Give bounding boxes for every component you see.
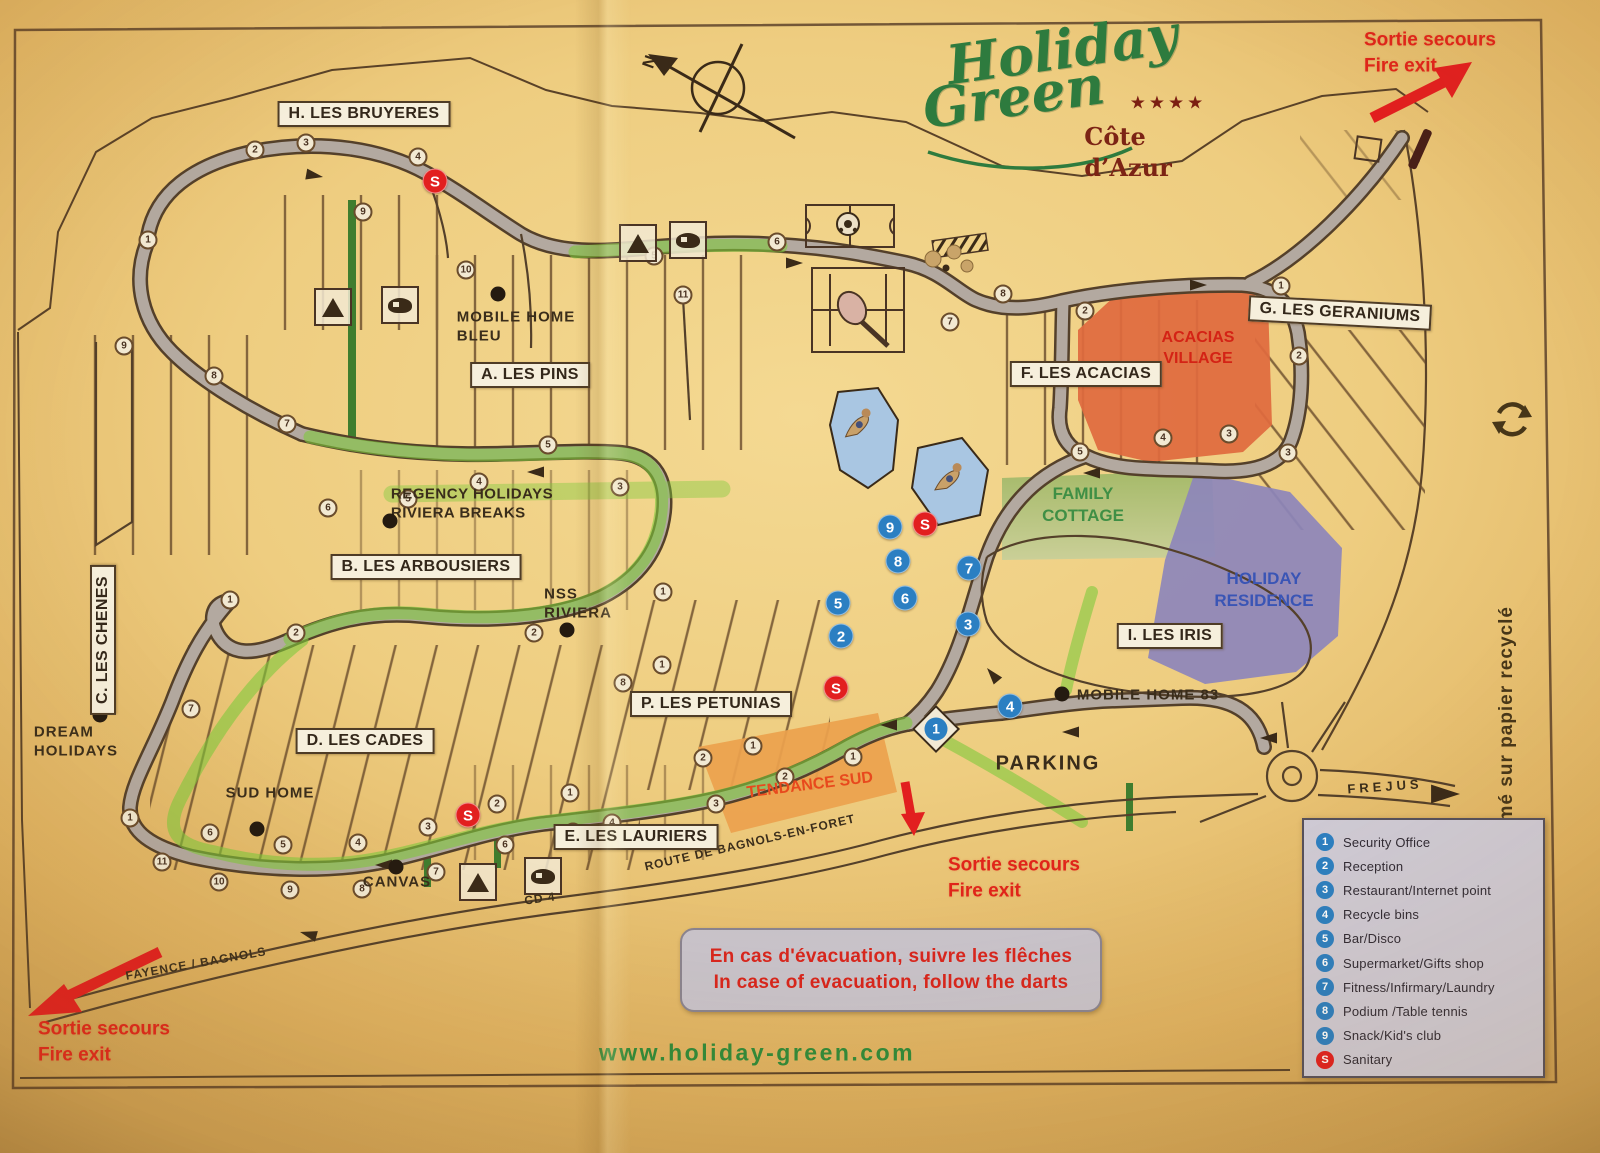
road-number-marker: 3 xyxy=(1220,425,1239,444)
road-number-marker: 3 xyxy=(611,478,630,497)
legend-symbol: 3 xyxy=(1316,881,1334,899)
sanitary-marker: S xyxy=(423,169,448,194)
road-number-marker: 9 xyxy=(281,881,300,900)
road-number-marker: 7 xyxy=(182,700,201,719)
road-number-marker: 8 xyxy=(205,367,224,386)
legend-label: Restaurant/Internet point xyxy=(1343,883,1491,898)
legend-label: Fitness/Infirmary/Laundry xyxy=(1343,980,1495,995)
facility-marker: 9 xyxy=(878,515,903,540)
road-number-marker: 10 xyxy=(210,873,229,892)
road-number-marker: 9 xyxy=(354,203,373,222)
legend-label: Snack/Kid's club xyxy=(1343,1028,1441,1043)
legend-label: Security Office xyxy=(1343,835,1430,850)
legend-item: 7Fitness/Infirmary/Laundry xyxy=(1316,975,1535,999)
caravan-icon xyxy=(381,286,419,324)
location-dot xyxy=(1055,687,1070,702)
road-number-marker: 1 xyxy=(654,583,673,602)
facility-marker: 8 xyxy=(886,549,911,574)
road-number-marker: 3 xyxy=(297,134,316,153)
zone-label-f-les-acacias: F. LES ACACIAS xyxy=(1010,361,1162,387)
map-label: PARKING xyxy=(996,752,1101,777)
legend-label: Supermarket/Gifts shop xyxy=(1343,956,1484,971)
facility-marker: 7 xyxy=(957,556,982,581)
map-label: DREAM HOLIDAYS xyxy=(34,723,118,761)
legend-label: Podium /Table tennis xyxy=(1343,1004,1468,1019)
zone-label-d-les-cades: D. LES CADES xyxy=(296,728,435,754)
road-number-marker: 2 xyxy=(525,624,544,643)
road-number-marker: 6 xyxy=(319,499,338,518)
fire-exit-label: Sortie secoursFire exit xyxy=(948,852,1080,903)
fire-exit-line-en: Fire exit xyxy=(1364,53,1496,79)
road-number-marker: 4 xyxy=(409,148,428,167)
road-number-marker: 4 xyxy=(349,834,368,853)
road-number-marker: 8 xyxy=(614,674,633,693)
fire-exit-line-en: Fire exit xyxy=(38,1042,170,1068)
tent-icon xyxy=(459,863,497,901)
legend-item: 6Supermarket/Gifts shop xyxy=(1316,951,1535,975)
map-label: REGENCY HOLIDAYS RIVIERA BREAKS xyxy=(391,485,553,523)
legend-symbol: 1 xyxy=(1316,833,1334,851)
legend-label: Sanitary xyxy=(1343,1052,1392,1067)
tent-icon xyxy=(314,288,352,326)
road-number-marker: 1 xyxy=(139,231,158,250)
map-label: NSS RIVIERA xyxy=(544,585,612,623)
road-number-marker: 1 xyxy=(844,748,863,767)
location-dot xyxy=(560,623,575,638)
road-number-marker: 6 xyxy=(496,836,515,855)
fire-exit-line-fr: Sortie secours xyxy=(948,852,1080,878)
road-number-marker: 1 xyxy=(561,784,580,803)
zone-label-a-les-pins: A. LES PINS xyxy=(470,362,590,388)
map-label: SUD HOME xyxy=(226,785,315,804)
fire-exit-label: Sortie secoursFire exit xyxy=(1364,27,1496,78)
road-number-marker: 9 xyxy=(115,337,134,356)
sanitary-marker: S xyxy=(824,676,849,701)
legend-item: 1Security Office xyxy=(1316,830,1535,854)
sanitary-marker: S xyxy=(913,512,938,537)
road-number-marker: 2 xyxy=(287,624,306,643)
location-dot xyxy=(389,860,404,875)
road-number-marker: 3 xyxy=(419,818,438,837)
road-number-marker: 11 xyxy=(153,853,172,872)
zone-label-c-les-chenes: C. LES CHENES xyxy=(90,565,116,715)
zone-label-p-les-petunias: P. LES PETUNIAS xyxy=(630,691,792,717)
legend-item: 3Restaurant/Internet point xyxy=(1316,878,1535,902)
zone-label-h-les-bruyeres: H. LES BRUYERES xyxy=(278,101,451,127)
legend-symbol: 9 xyxy=(1316,1027,1334,1045)
road-number-marker: 1 xyxy=(1272,277,1291,296)
facility-marker: 4 xyxy=(998,694,1023,719)
legend-item: 9Snack/Kid's club xyxy=(1316,1024,1535,1048)
legend-label: Recycle bins xyxy=(1343,907,1419,922)
road-number-marker: 4 xyxy=(1154,429,1173,448)
road-number-marker: 10 xyxy=(457,261,476,280)
fire-exit-line-en: Fire exit xyxy=(948,878,1080,904)
road-number-marker: 1 xyxy=(653,656,672,675)
road-number-marker: 1 xyxy=(744,737,763,756)
road-number-marker: 1 xyxy=(221,591,240,610)
road-number-marker: 5 xyxy=(539,436,558,455)
location-dot xyxy=(250,822,265,837)
fire-exit-label: Sortie secoursFire exit xyxy=(38,1016,170,1067)
area-label: ACACIAS VILLAGE xyxy=(1162,328,1235,370)
legend-symbol: 7 xyxy=(1316,978,1334,996)
road-number-marker: 7 xyxy=(278,415,297,434)
legend-item: SSanitary xyxy=(1316,1048,1535,1072)
road-number-marker: 1 xyxy=(121,809,140,828)
road-number-marker: 3 xyxy=(707,795,726,814)
location-dot xyxy=(383,514,398,529)
road-number-marker: 8 xyxy=(994,285,1013,304)
map-label: MOBILE HOME BLEU xyxy=(457,308,576,346)
legend-symbol: 5 xyxy=(1316,930,1334,948)
map-label: CANVAS xyxy=(363,874,431,893)
legend-symbol: 6 xyxy=(1316,954,1334,972)
road-number-marker: 6 xyxy=(201,824,220,843)
region-label: Côte d’Azur xyxy=(1084,121,1171,183)
legend-item: 4Recycle bins xyxy=(1316,903,1535,927)
road-number-marker: 2 xyxy=(488,795,507,814)
road-number-marker: 2 xyxy=(1290,347,1309,366)
sanitary-marker: S xyxy=(456,803,481,828)
fire-exit-line-fr: Sortie secours xyxy=(38,1016,170,1042)
road-number-marker: 11 xyxy=(674,286,693,305)
evacuation-line-fr: En cas d'évacuation, suivre les flêches xyxy=(710,946,1073,968)
zone-label-i-les-iris: I. LES IRIS xyxy=(1117,623,1223,649)
area-label: HOLIDAY RESIDENCE xyxy=(1214,568,1313,612)
road-number-marker: 2 xyxy=(246,141,265,160)
legend-symbol: S xyxy=(1316,1051,1334,1069)
road-number-marker: 3 xyxy=(1279,444,1298,463)
legend-symbol: 2 xyxy=(1316,857,1334,875)
facility-marker: 6 xyxy=(893,586,918,611)
legend-item: 5Bar/Disco xyxy=(1316,927,1535,951)
facility-marker: 3 xyxy=(956,612,981,637)
evacuation-notice: En cas d'évacuation, suivre les flêches … xyxy=(680,928,1102,1012)
campsite-map-photo: Holiday Green ★★★★ Côte d’Azur N En cas … xyxy=(0,0,1600,1153)
map-label: MOBILE HOME 83 xyxy=(1077,687,1219,706)
facility-marker: 2 xyxy=(829,624,854,649)
legend-label: Reception xyxy=(1343,859,1403,874)
fire-exit-line-fr: Sortie secours xyxy=(1364,27,1496,53)
road-number-marker: 6 xyxy=(768,233,787,252)
four-star-rating: ★★★★ xyxy=(1130,93,1207,114)
legend-item: 2Reception xyxy=(1316,854,1535,878)
entrance-security-number: 1 xyxy=(925,718,948,741)
evacuation-line-en: In case of evacuation, follow the darts xyxy=(714,972,1069,994)
website-url: www.holiday-green.com xyxy=(599,1040,915,1067)
road-number-marker: 2 xyxy=(1076,302,1095,321)
road-number-marker: 5 xyxy=(1071,443,1090,462)
facility-marker: 5 xyxy=(826,591,851,616)
area-label: FAMILY COTTAGE xyxy=(1042,483,1124,527)
legend-symbol: 4 xyxy=(1316,906,1334,924)
legend-item: 8Podium /Table tennis xyxy=(1316,999,1535,1023)
caravan-icon xyxy=(524,857,562,895)
recycle-icon xyxy=(1492,404,1532,434)
road-number-marker: 7 xyxy=(941,313,960,332)
legend-symbol: 8 xyxy=(1316,1002,1334,1020)
compass-rose xyxy=(648,44,795,138)
legend-label: Bar/Disco xyxy=(1343,931,1401,946)
location-dot xyxy=(491,287,506,302)
zone-label-e-les-lauriers: E. LES LAURIERS xyxy=(554,824,719,850)
road-number-marker: 5 xyxy=(274,836,293,855)
zone-label-b-les-arbousiers: B. LES ARBOUSIERS xyxy=(331,554,522,580)
road-number-marker: 2 xyxy=(694,749,713,768)
tent-icon xyxy=(619,224,657,262)
caravan-icon xyxy=(669,221,707,259)
legend: 1Security Office2Reception3Restaurant/In… xyxy=(1302,818,1545,1078)
